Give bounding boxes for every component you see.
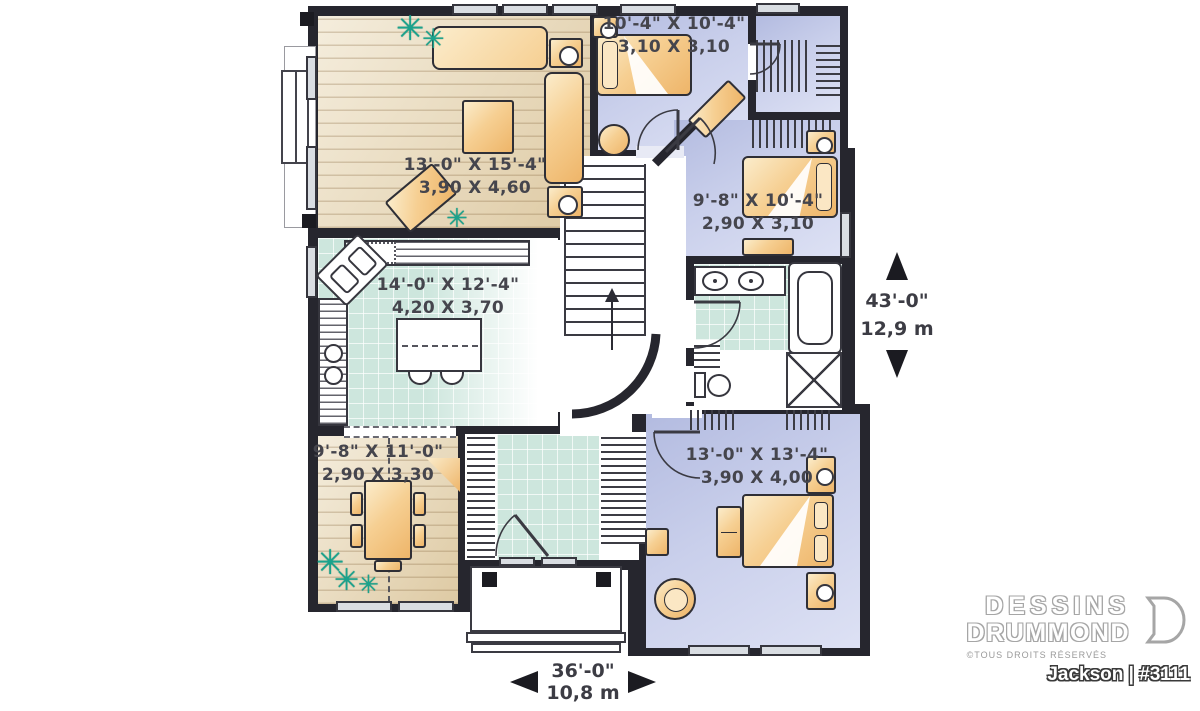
door-sidelight [541, 557, 577, 566]
plant-icon: ✳ [334, 566, 359, 596]
sink [738, 271, 764, 291]
kitchen-metric: 4,20 X 3,70 [377, 297, 520, 320]
window [452, 4, 498, 15]
dining-metric: 2,90 X 3,30 [313, 464, 444, 487]
entry-closet-left [467, 436, 495, 558]
dining-chair [350, 524, 363, 548]
window [502, 4, 548, 15]
label-living-room: 13'-0" X 15'-4" 3,90 X 4,60 [404, 154, 547, 200]
kitchen-imperial: 14'-0" X 12'-4" [377, 274, 520, 297]
opening-kitchen-dining [344, 426, 456, 438]
bedroom-chair [598, 124, 630, 156]
arrow-down-icon [886, 350, 908, 378]
dining-chair [413, 524, 426, 548]
plant-icon: ✳ [396, 12, 425, 46]
linen-shelves [694, 340, 720, 368]
plant-icon: ✳ [358, 572, 379, 597]
door-sidelight [499, 557, 535, 566]
pillow [814, 502, 828, 529]
stove-burner [324, 344, 343, 363]
brand-block: DESSINS DRUMMOND ©TOUS DROITS RÉSERVÉS J… [940, 592, 1190, 686]
toilet-tank [694, 372, 706, 398]
master-closet-top [690, 410, 738, 430]
width-dimension: 36'-0" 10,8 m [498, 660, 668, 704]
living-imperial: 13'-0" X 15'-4" [404, 154, 547, 177]
sink [702, 271, 728, 291]
window [306, 246, 317, 298]
label-bedroom3: 9'-8" X 10'-4" 2,90 X 3,10 [693, 190, 824, 236]
porch-post [482, 572, 497, 587]
label-bedroom2: 10'-4" X 10'-4" 3,10 X 3,10 [603, 13, 746, 59]
window [306, 56, 317, 100]
end-table [547, 186, 583, 218]
window [760, 645, 822, 656]
dresser [716, 506, 742, 558]
walkin-shelves [756, 40, 812, 92]
bench [742, 238, 794, 256]
window [840, 212, 851, 258]
brand-rights: ©TOUS DROITS RÉSERVÉS [967, 650, 1130, 660]
bed-fold [760, 496, 810, 566]
label-kitchen: 14'-0" X 12'-4" 4,20 X 3,70 [377, 274, 520, 320]
plant-icon: ✳ [422, 26, 445, 53]
dining-chair [413, 492, 426, 516]
bedroom3-metric: 2,90 X 3,10 [693, 213, 824, 236]
label-master: 13'-0" X 13'-4" 3,90 X 4,00 [686, 444, 829, 490]
porch-step [471, 643, 621, 653]
bedroom2-imperial: 10'-4" X 10'-4" [603, 13, 746, 36]
stairs-direction-arrow [611, 300, 613, 350]
walkin-shelves [816, 40, 840, 96]
bed [742, 494, 834, 568]
master-closet-top [786, 410, 830, 430]
window [756, 3, 800, 14]
coffee-table [462, 100, 514, 154]
drummond-logo-icon [1138, 592, 1190, 650]
porch-post [596, 572, 611, 587]
side-table [645, 528, 669, 556]
sofa [432, 26, 548, 70]
depth-metric: 12,9 m [860, 318, 933, 340]
master-imperial: 13'-0" X 13'-4" [686, 444, 829, 467]
width-metric: 10,8 m [546, 682, 619, 704]
pillow [814, 535, 828, 562]
brand-line1: DESSINS [967, 592, 1130, 621]
plant-icon: ✳ [446, 206, 468, 232]
nightstand [806, 572, 836, 610]
window [552, 4, 598, 15]
depth-imperial: 43'-0" [865, 290, 928, 312]
arrow-left-icon [510, 671, 538, 693]
dining-table [364, 480, 412, 560]
label-dining: 9'-8" X 11'-0" 2,90 X 3,30 [313, 441, 444, 487]
toilet-bowl [707, 374, 731, 397]
lamp-icon [558, 195, 578, 215]
arrow-up-icon [886, 252, 908, 280]
depth-dimension: 43'-0" 12,9 m [862, 252, 932, 402]
window [306, 146, 317, 210]
floor-plan-canvas: ✳ ✳ ✳ ✳ ✳ ✳ [0, 0, 1200, 711]
dining-chair [350, 492, 363, 516]
plan-name: Jackson | #3111 [940, 664, 1190, 686]
accent-chair [654, 578, 696, 620]
living-metric: 3,90 X 4,60 [404, 177, 547, 200]
arrow-right-icon [628, 671, 656, 693]
dining-imperial: 9'-8" X 11'-0" [313, 441, 444, 464]
brand-line2: DRUMMOND [967, 619, 1130, 648]
window [688, 645, 750, 656]
porch-post [302, 214, 316, 228]
bathtub [788, 262, 842, 354]
sofa-loveseat [544, 72, 584, 184]
porch-step [466, 632, 626, 643]
porch-post [300, 12, 314, 26]
master-closet-side [630, 432, 646, 544]
bay-window [281, 70, 309, 164]
master-metric: 3,90 X 4,00 [686, 467, 829, 490]
entry-tile [497, 434, 599, 560]
nightstand [806, 130, 836, 154]
width-imperial: 36'-0" [546, 660, 619, 682]
end-table [549, 38, 583, 68]
bedroom3-imperial: 9'-8" X 10'-4" [693, 190, 824, 213]
bedroom2-metric: 3,10 X 3,10 [603, 36, 746, 59]
kitchen-island [396, 318, 482, 372]
stairs-arrow-head [605, 288, 619, 302]
window [336, 601, 392, 612]
window [398, 601, 454, 612]
lamp-icon [559, 46, 579, 66]
stove-burner [324, 366, 343, 385]
shower [786, 352, 842, 408]
opening-hall-entry [560, 410, 632, 436]
